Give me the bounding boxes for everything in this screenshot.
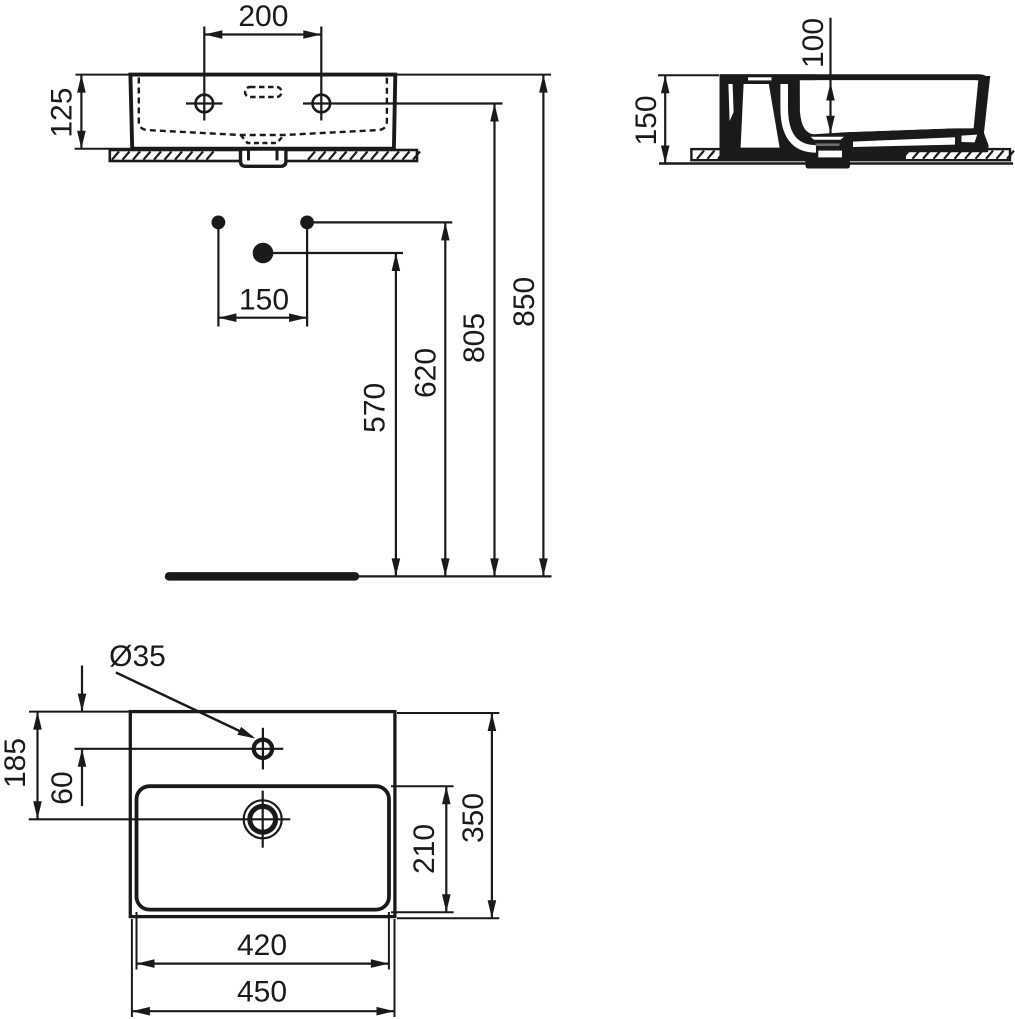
svg-text:200: 200 <box>238 0 288 33</box>
svg-text:850: 850 <box>508 277 541 327</box>
svg-text:620: 620 <box>409 348 442 398</box>
svg-text:125: 125 <box>46 88 79 138</box>
svg-text:210: 210 <box>408 824 441 874</box>
svg-text:150: 150 <box>630 95 663 145</box>
svg-text:Ø35: Ø35 <box>109 640 166 673</box>
svg-text:570: 570 <box>359 383 392 433</box>
svg-text:100: 100 <box>797 18 830 68</box>
svg-text:150: 150 <box>239 283 289 316</box>
svg-text:420: 420 <box>237 929 287 962</box>
svg-text:450: 450 <box>237 975 287 1008</box>
svg-text:805: 805 <box>458 313 491 363</box>
svg-text:185: 185 <box>0 738 32 788</box>
svg-text:60: 60 <box>46 771 79 804</box>
svg-text:350: 350 <box>457 793 490 843</box>
